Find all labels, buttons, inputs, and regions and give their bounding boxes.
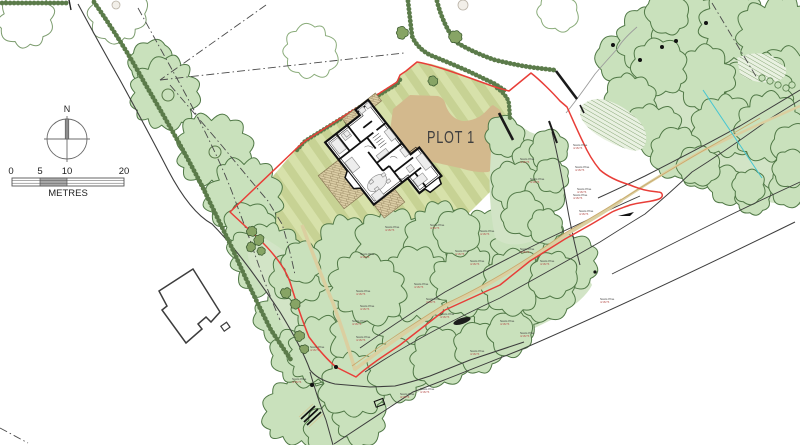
svg-text:20: 20 xyxy=(119,166,130,177)
svg-text:4/18/76: 4/18/76 xyxy=(356,338,366,342)
svg-text:0: 0 xyxy=(8,166,13,177)
svg-text:4/18/76: 4/18/76 xyxy=(455,252,465,256)
svg-text:4/18/76: 4/18/76 xyxy=(385,228,395,232)
svg-text:4/18/76: 4/18/76 xyxy=(360,307,370,311)
svg-text:N: N xyxy=(64,104,71,114)
svg-text:4/18/76: 4/18/76 xyxy=(540,262,550,266)
svg-text:4/18/76: 4/18/76 xyxy=(480,232,490,236)
svg-text:10: 10 xyxy=(62,166,73,177)
svg-text:4/18/76: 4/18/76 xyxy=(420,390,430,394)
svg-text:4/18/76: 4/18/76 xyxy=(573,196,583,200)
svg-text:5: 5 xyxy=(37,166,42,177)
svg-text:4/18/76: 4/18/76 xyxy=(530,180,540,184)
svg-text:PLOT 1: PLOT 1 xyxy=(427,127,475,147)
svg-text:4/18/76: 4/18/76 xyxy=(573,146,583,150)
svg-text:4/18/76: 4/18/76 xyxy=(600,300,610,304)
svg-text:4/18/76: 4/18/76 xyxy=(310,348,320,352)
svg-text:4/18/76: 4/18/76 xyxy=(352,322,362,326)
svg-text:4/18/76: 4/18/76 xyxy=(500,322,510,326)
svg-text:4/18/76: 4/18/76 xyxy=(356,292,366,296)
svg-text:4/18/76: 4/18/76 xyxy=(579,212,589,216)
svg-text:4/18/76: 4/18/76 xyxy=(520,160,530,164)
svg-text:4/18/76: 4/18/76 xyxy=(440,315,450,319)
svg-text:4/18/76: 4/18/76 xyxy=(520,250,530,254)
svg-text:4/18/76: 4/18/76 xyxy=(292,380,302,384)
svg-text:4/18/76: 4/18/76 xyxy=(430,226,440,230)
svg-text:4/18/76: 4/18/76 xyxy=(470,262,480,266)
svg-text:4/18/76: 4/18/76 xyxy=(426,300,436,304)
svg-text:4/18/76: 4/18/76 xyxy=(400,395,410,399)
svg-text:METRES: METRES xyxy=(48,188,88,199)
svg-text:4/18/76: 4/18/76 xyxy=(575,168,585,172)
svg-text:4/18/76: 4/18/76 xyxy=(520,334,530,338)
svg-text:4/18/76: 4/18/76 xyxy=(360,255,370,259)
svg-text:4/18/76: 4/18/76 xyxy=(470,352,480,356)
svg-text:4/18/76: 4/18/76 xyxy=(414,285,424,289)
